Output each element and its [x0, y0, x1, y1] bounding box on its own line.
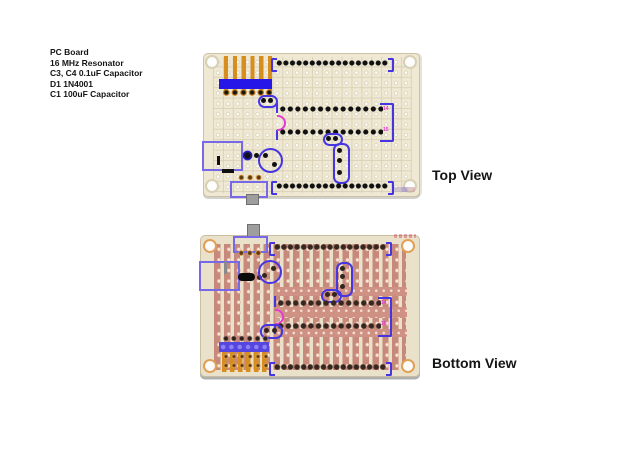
jumper-bar — [217, 156, 220, 165]
pin-header-row-top — [274, 243, 386, 251]
mounting-hole — [401, 239, 415, 253]
parts-list-line: D1 1N4001 — [50, 79, 143, 90]
copper-traces-icon — [222, 352, 268, 372]
parts-list-line: PC Board — [50, 47, 143, 58]
mounting-hole — [203, 359, 217, 373]
mounting-hole — [401, 359, 415, 373]
mounting-hole — [205, 179, 219, 193]
component-outline-left — [202, 141, 243, 171]
label-bottom-view: Bottom View — [432, 355, 517, 371]
jumper-bar — [224, 262, 227, 274]
ic-socket-pins-row — [277, 322, 381, 330]
mounting-hole — [205, 55, 219, 69]
mounting-hole — [403, 55, 417, 69]
pin-header-row-bottom — [276, 182, 388, 190]
pin-number-label: 14 — [383, 107, 389, 112]
pin-number-label: 15 — [383, 128, 389, 133]
wire-pad-icon — [242, 150, 253, 161]
diode-d1-body — [238, 273, 255, 281]
board-tab — [246, 194, 259, 205]
connector-solid-bar — [219, 342, 269, 352]
component-outline-left — [199, 261, 240, 291]
capacitor-c1-outline — [258, 148, 283, 173]
parts-list-line: 16 MHz Resonator — [50, 58, 143, 69]
capacitor-c1-outline — [258, 260, 282, 284]
parts-list: PC Board 16 MHz Resonator C3, C4 0.1uF C… — [50, 47, 143, 100]
label-top-view: Top View — [432, 167, 492, 183]
capacitor-c3-outline — [258, 95, 278, 108]
ic-socket-pins-row — [277, 299, 381, 307]
pin-row-end-bracket — [386, 242, 392, 256]
pin-number-label: 15 — [381, 322, 387, 327]
resonator-outline — [333, 143, 350, 184]
parts-list-line: C3, C4 0.1uF Capacitor — [50, 68, 143, 79]
mounting-hole — [203, 239, 217, 253]
pin-number-label: 14 — [381, 301, 387, 306]
board-print-mark — [394, 187, 415, 192]
pin-header-row-bottom — [274, 363, 386, 371]
pcb-top-view: 14 15 — [203, 53, 420, 197]
ic-socket-pins-row — [279, 105, 383, 113]
pin-header-row-top — [276, 59, 388, 67]
pin-row-end-bracket — [388, 58, 394, 72]
diode-d1-bar — [222, 169, 234, 173]
parts-list-line: C1 100uF Capacitor — [50, 89, 143, 100]
pin-row-end-bracket — [386, 362, 392, 376]
ic-socket-outline: 14 15 — [274, 296, 392, 334]
solder-pad-row — [237, 249, 263, 257]
pcb-bottom-view: 14 15 — [200, 235, 420, 377]
board-print-mark — [394, 234, 416, 238]
